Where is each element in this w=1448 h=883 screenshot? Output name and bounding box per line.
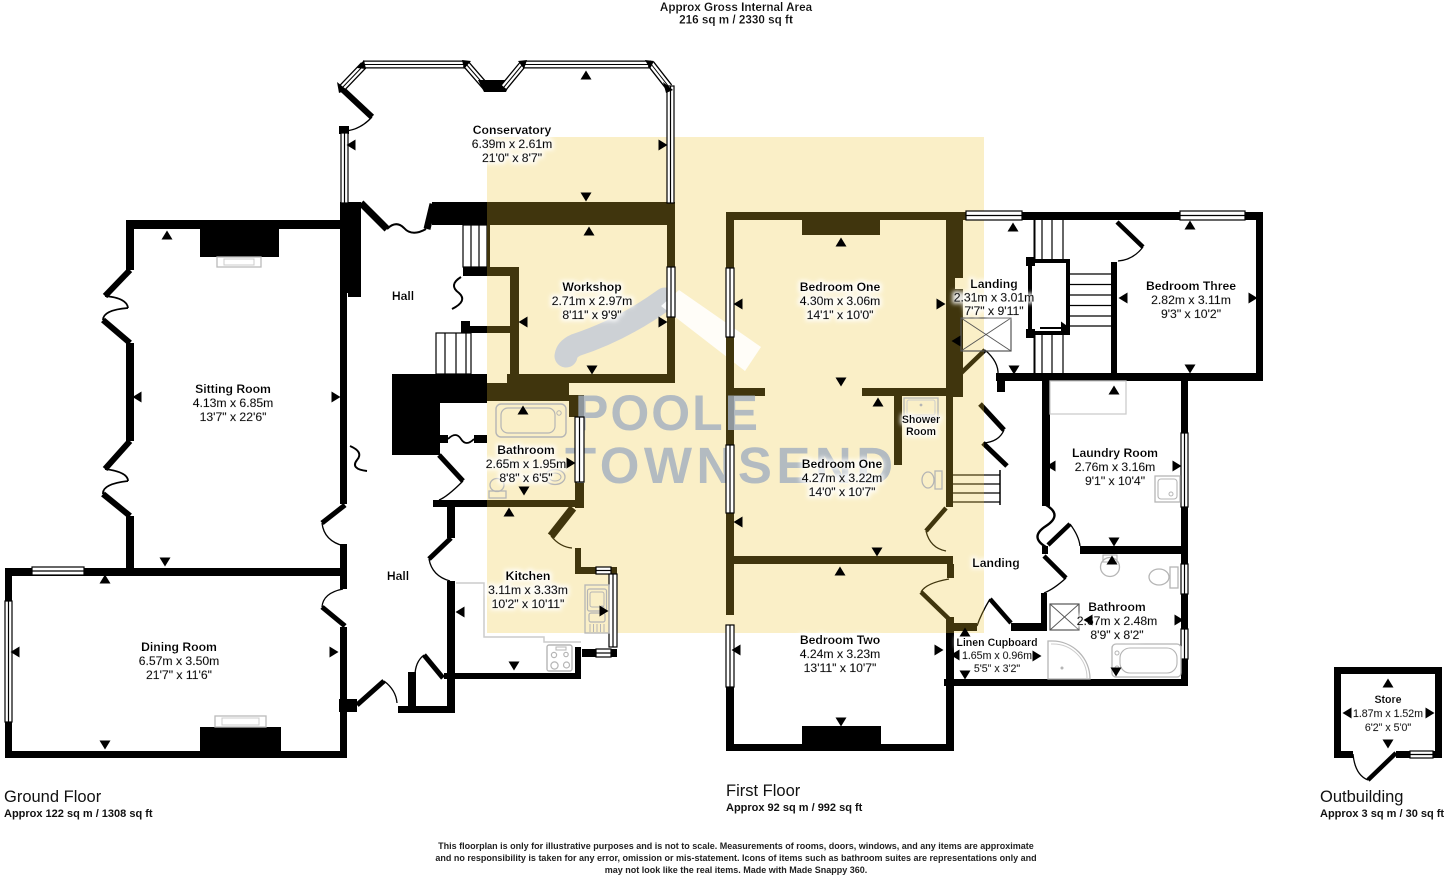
svg-text:2.31m x 3.01m: 2.31m x 3.01m xyxy=(954,291,1035,305)
svg-text:3.11m x 3.33m: 3.11m x 3.33m xyxy=(488,583,568,597)
svg-text:4.27m x 3.22m: 4.27m x 3.22m xyxy=(802,471,883,485)
svg-text:1.87m x 1.52m: 1.87m x 1.52m xyxy=(1353,708,1423,720)
svg-text:2.76m x 3.16m: 2.76m x 3.16m xyxy=(1075,460,1156,474)
svg-text:8'8" x 6'5": 8'8" x 6'5" xyxy=(499,471,552,485)
svg-text:9'3" x 10'2": 9'3" x 10'2" xyxy=(1161,307,1221,321)
svg-text:Linen Cupboard: Linen Cupboard xyxy=(956,637,1037,649)
svg-text:6'2" x 5'0": 6'2" x 5'0" xyxy=(1365,722,1412,734)
svg-text:Sitting Room: Sitting Room xyxy=(195,382,271,396)
svg-text:Bedroom Three: Bedroom Three xyxy=(1146,279,1236,293)
svg-text:6.57m x 3.50m: 6.57m x 3.50m xyxy=(139,654,220,668)
svg-text:4.30m x 3.06m: 4.30m x 3.06m xyxy=(800,294,881,308)
svg-text:Landing: Landing xyxy=(972,556,1019,570)
svg-text:Approx 3 sq m / 30 sq ft: Approx 3 sq m / 30 sq ft xyxy=(1320,808,1444,820)
svg-text:Bedroom One: Bedroom One xyxy=(802,457,883,471)
svg-text:Bedroom One: Bedroom One xyxy=(800,280,881,294)
svg-text:Hall: Hall xyxy=(387,569,409,583)
svg-text:4.24m x 3.23m: 4.24m x 3.23m xyxy=(800,647,881,661)
svg-text:Store: Store xyxy=(1374,694,1401,706)
svg-text:14'0" x 10'7": 14'0" x 10'7" xyxy=(809,485,876,499)
svg-text:13'11" x 10'7": 13'11" x 10'7" xyxy=(804,661,877,675)
svg-text:216 sq m / 2330 sq ft: 216 sq m / 2330 sq ft xyxy=(679,14,793,27)
svg-text:Approx Gross Internal Area: Approx Gross Internal Area xyxy=(660,1,813,14)
svg-text:Dining Room: Dining Room xyxy=(141,640,217,654)
svg-text:Bathroom: Bathroom xyxy=(1088,600,1146,614)
svg-text:4.13m x 6.85m: 4.13m x 6.85m xyxy=(193,396,274,410)
svg-text:14'1" x 10'0": 14'1" x 10'0" xyxy=(807,308,874,322)
svg-text:13'7" x 22'6": 13'7" x 22'6" xyxy=(200,410,267,424)
svg-text:Approx 92 sq m / 992 sq ft: Approx 92 sq m / 992 sq ft xyxy=(726,802,863,814)
svg-text:Ground Floor: Ground Floor xyxy=(4,788,102,806)
svg-text:Workshop: Workshop xyxy=(562,280,621,294)
svg-text:may not look like the real ite: may not look like the real items. Made w… xyxy=(605,865,868,875)
svg-text:10'2" x 10'11": 10'2" x 10'11" xyxy=(492,597,565,611)
svg-text:Hall: Hall xyxy=(392,289,414,303)
svg-text:7'7" x 9'11": 7'7" x 9'11" xyxy=(964,304,1023,318)
svg-text:Laundry Room: Laundry Room xyxy=(1072,446,1158,460)
svg-text:POOLE: POOLE xyxy=(575,385,760,441)
svg-text:and no responsibility is taken: and no responsibility is taken for any e… xyxy=(435,853,1036,863)
svg-text:2.82m x 3.11m: 2.82m x 3.11m xyxy=(1151,293,1231,307)
svg-text:5'5" x 3'2": 5'5" x 3'2" xyxy=(974,663,1021,675)
svg-text:First Floor: First Floor xyxy=(726,782,801,800)
svg-text:1.65m x 0.96m: 1.65m x 0.96m xyxy=(962,650,1032,662)
svg-text:6.39m x 2.61m: 6.39m x 2.61m xyxy=(472,137,553,151)
svg-text:21'7" x 11'6": 21'7" x 11'6" xyxy=(146,668,212,682)
svg-text:Landing: Landing xyxy=(970,277,1017,291)
svg-text:Outbuilding: Outbuilding xyxy=(1320,788,1403,806)
svg-text:Room: Room xyxy=(906,426,936,438)
svg-text:Bedroom Two: Bedroom Two xyxy=(800,633,880,647)
svg-text:Kitchen: Kitchen xyxy=(506,569,551,583)
svg-text:21'0" x 8'7": 21'0" x 8'7" xyxy=(482,151,542,165)
svg-text:Approx 122 sq m / 1308 sq ft: Approx 122 sq m / 1308 sq ft xyxy=(4,808,153,820)
svg-text:Bathroom: Bathroom xyxy=(497,443,555,457)
svg-text:8'9" x 8'2": 8'9" x 8'2" xyxy=(1090,628,1143,642)
svg-text:This floorplan is only for ill: This floorplan is only for illustrative … xyxy=(438,841,1034,851)
svg-text:2.65m x 1.95m: 2.65m x 1.95m xyxy=(486,457,567,471)
svg-text:9'1" x 10'4": 9'1" x 10'4" xyxy=(1085,474,1145,488)
svg-text:Shower: Shower xyxy=(902,414,940,426)
svg-text:Conservatory: Conservatory xyxy=(473,123,552,137)
svg-text:8'11" x 9'9": 8'11" x 9'9" xyxy=(562,308,621,322)
svg-text:2.71m x 2.97m: 2.71m x 2.97m xyxy=(552,294,633,308)
